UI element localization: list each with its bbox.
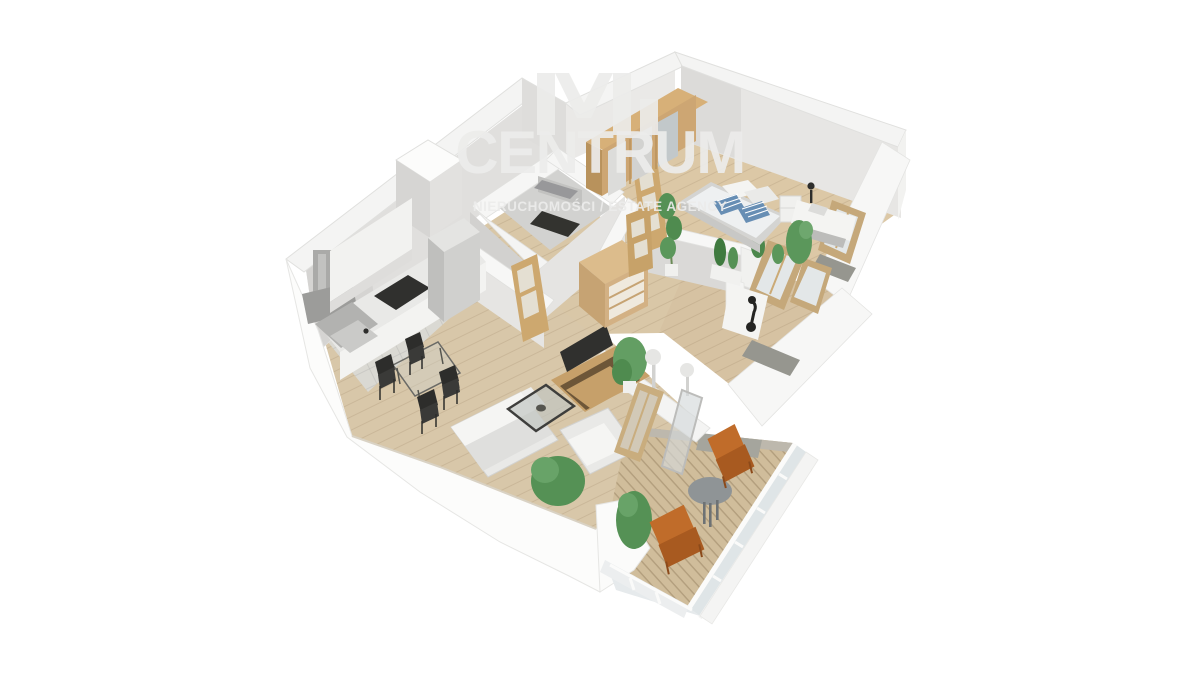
svg-text:NIERUCHOMOŚCI / ESTATE AGENCY: NIERUCHOMOŚCI / ESTATE AGENCY [473, 199, 727, 214]
svg-text:CENTRUM: CENTRUM [455, 119, 744, 186]
